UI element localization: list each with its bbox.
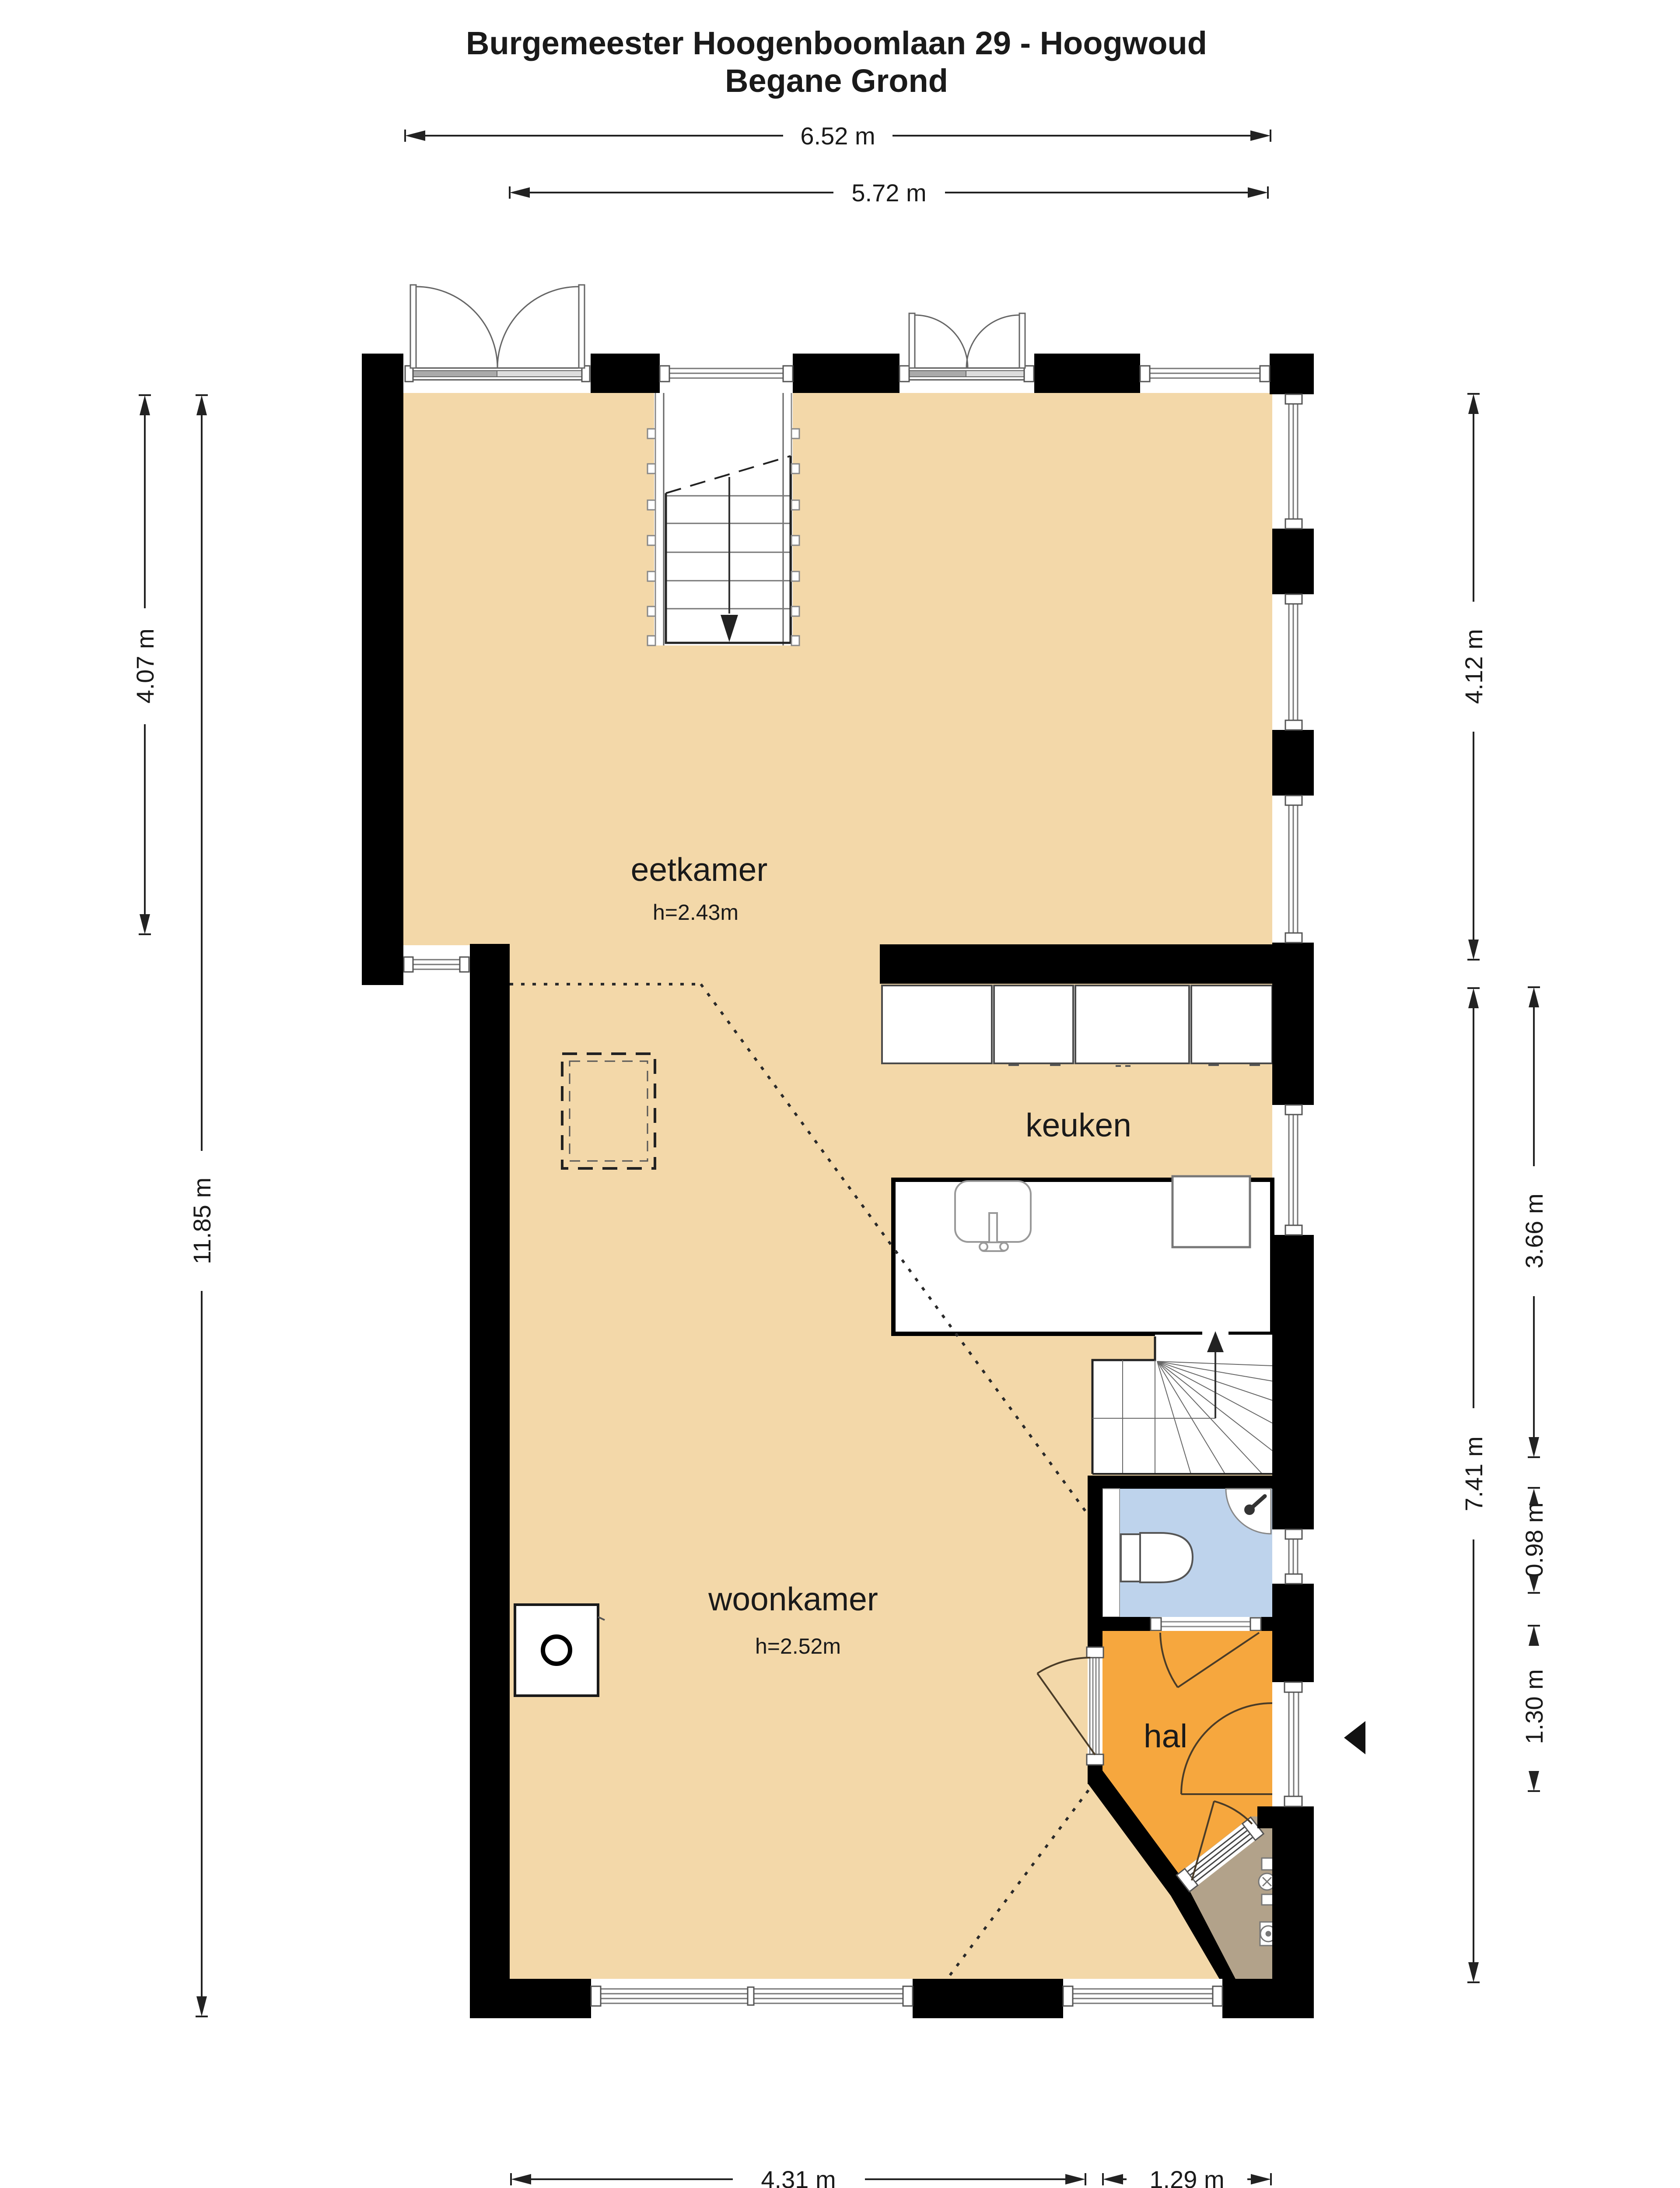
svg-text:1.29 m: 1.29 m <box>1149 2166 1224 2188</box>
svg-text:7.41 m: 7.41 m <box>1460 1436 1487 1511</box>
svg-text:eetkamer: eetkamer <box>631 851 768 888</box>
svg-text:4.07 m: 4.07 m <box>131 628 159 703</box>
svg-text:6.52 m: 6.52 m <box>800 122 875 150</box>
svg-text:Begane Grond: Begane Grond <box>725 63 948 99</box>
svg-text:3.66 m: 3.66 m <box>1520 1193 1548 1268</box>
svg-text:4.31 m: 4.31 m <box>761 2166 836 2188</box>
svg-text:1.30 m: 1.30 m <box>1520 1669 1548 1744</box>
svg-text:keuken: keuken <box>1025 1107 1131 1143</box>
svg-text:5.72 m: 5.72 m <box>851 179 926 207</box>
svg-text:h=2.52m: h=2.52m <box>755 1634 841 1659</box>
svg-text:0.98 m: 0.98 m <box>1520 1502 1548 1577</box>
svg-text:11.85 m: 11.85 m <box>188 1178 216 1264</box>
svg-text:4.12 m: 4.12 m <box>1460 629 1487 704</box>
svg-text:Burgemeester Hoogenboomlaan 29: Burgemeester Hoogenboomlaan 29 - Hoogwou… <box>466 25 1207 61</box>
svg-text:woonkamer: woonkamer <box>708 1581 878 1617</box>
svg-text:h=2.43m: h=2.43m <box>653 900 738 925</box>
svg-text:hal: hal <box>1144 1718 1187 1754</box>
